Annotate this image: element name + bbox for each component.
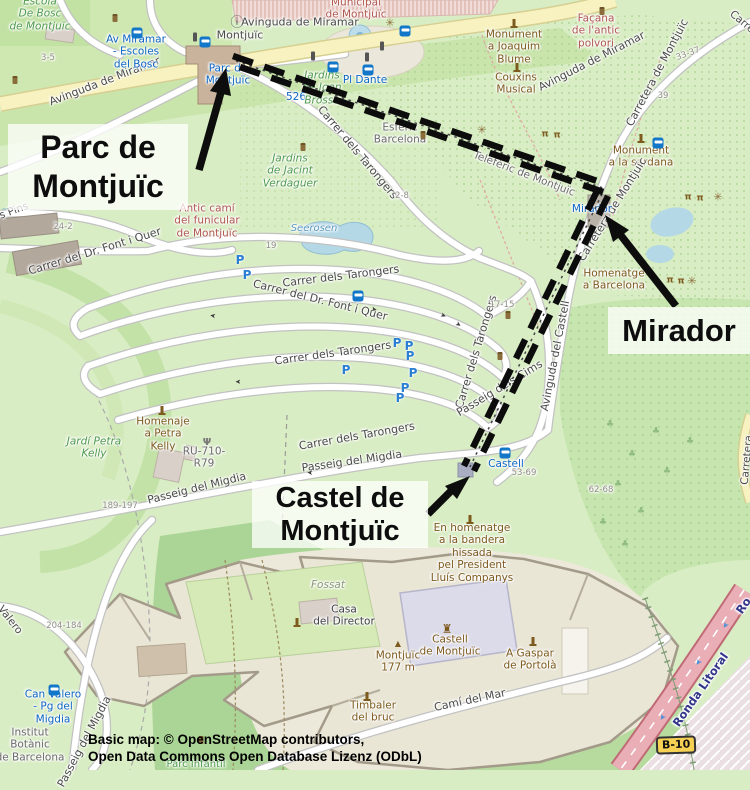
annotation-mirador: Mirador [608, 307, 750, 354]
map-canvas[interactable] [0, 0, 750, 770]
map-figure: { "annotations": { "parc": "Parc de\nMon… [0, 0, 750, 770]
attribution-line-2: Open Data Commons Open Database Lizenz (… [88, 748, 422, 765]
attribution-line-1: Basic map: © OpenStreetMap contributors, [88, 731, 422, 748]
road-ref-badge-b10: B-10 [656, 735, 697, 754]
annotation-parc-de-montjuic: Parc de Montjuïc [8, 124, 188, 210]
map-attribution: Basic map: © OpenStreetMap contributors,… [88, 731, 422, 765]
annotation-castel-de-montjuic: Castel de Montjuïc [252, 481, 428, 548]
